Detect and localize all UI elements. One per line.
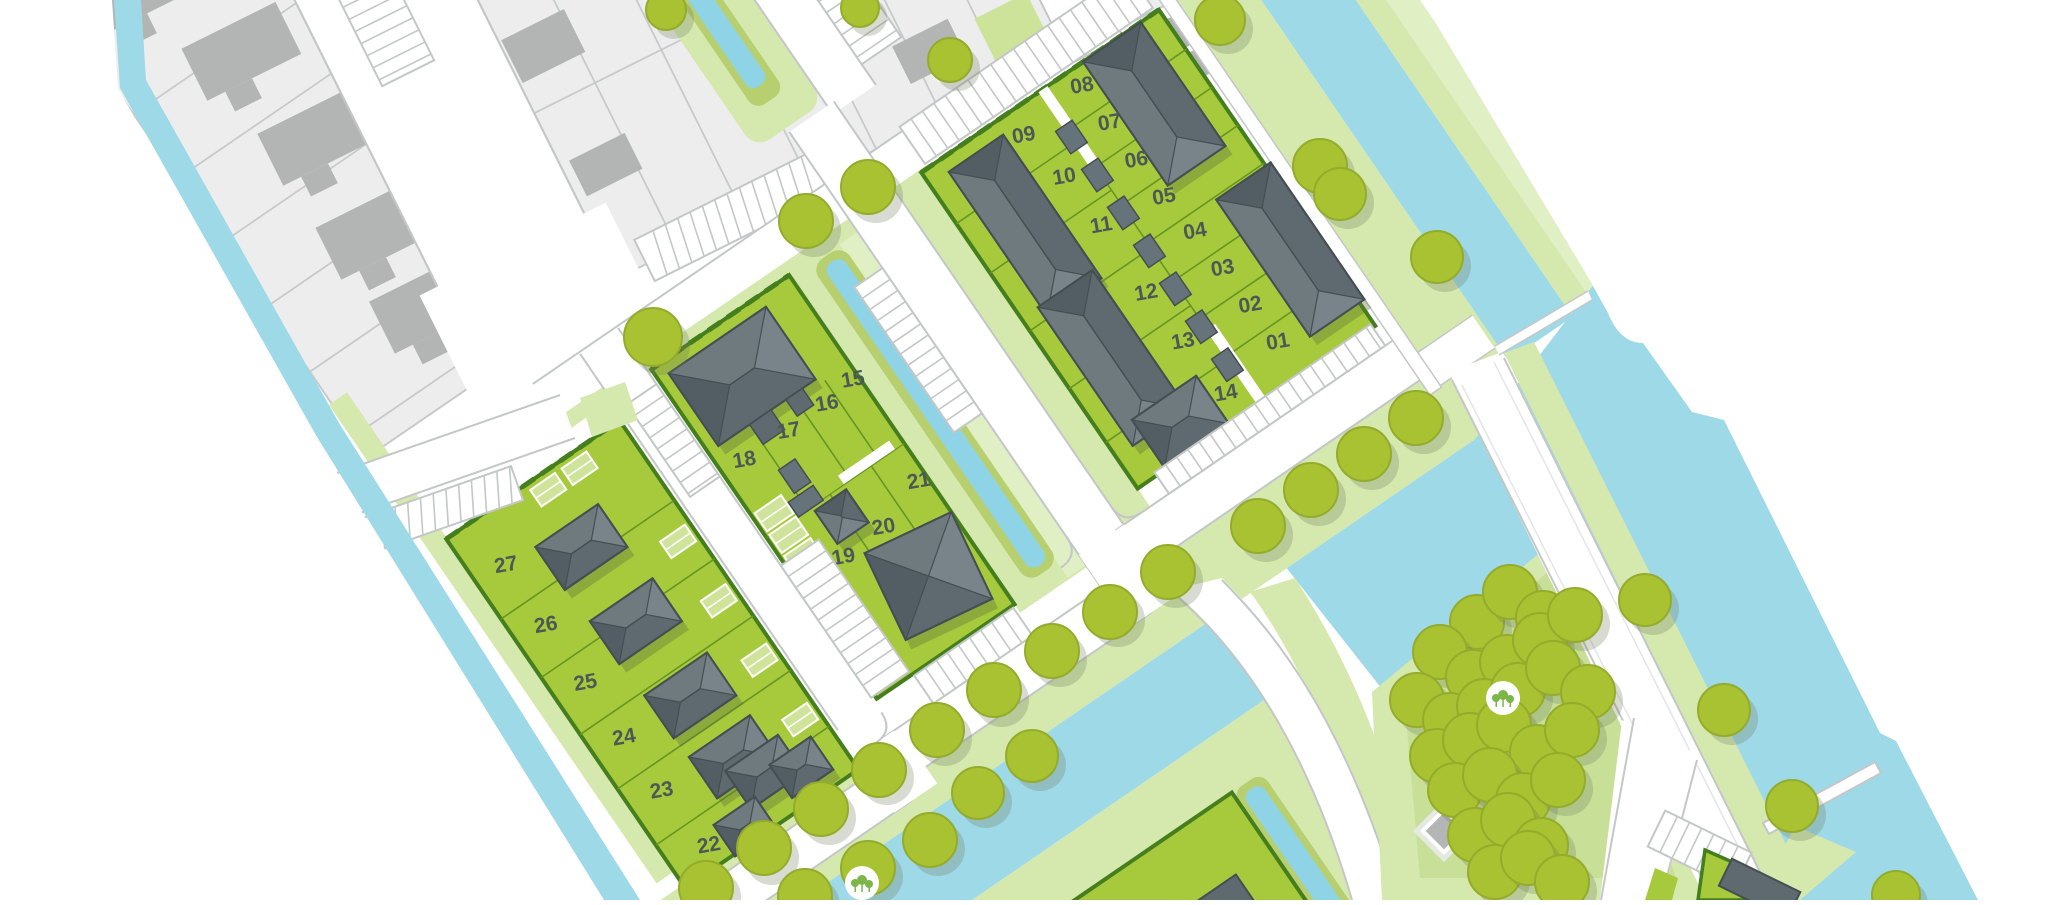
- svg-text:09: 09: [1010, 122, 1037, 149]
- svg-text:23: 23: [648, 777, 675, 804]
- svg-text:07: 07: [1096, 109, 1123, 136]
- svg-text:14: 14: [1212, 380, 1239, 407]
- svg-text:17: 17: [775, 417, 802, 444]
- svg-text:12: 12: [1133, 279, 1160, 306]
- svg-text:01: 01: [1264, 328, 1291, 355]
- svg-text:20: 20: [870, 514, 897, 541]
- svg-text:22: 22: [695, 832, 722, 859]
- svg-text:18: 18: [731, 446, 758, 473]
- svg-text:02: 02: [1237, 292, 1264, 319]
- svg-text:21: 21: [905, 468, 932, 495]
- svg-text:06: 06: [1123, 146, 1150, 173]
- svg-text:11: 11: [1088, 212, 1114, 239]
- svg-text:15: 15: [839, 366, 866, 393]
- svg-text:08: 08: [1068, 72, 1095, 99]
- svg-text:26: 26: [532, 611, 559, 638]
- svg-text:10: 10: [1051, 163, 1078, 190]
- svg-text:24: 24: [611, 724, 638, 751]
- svg-text:05: 05: [1151, 183, 1178, 210]
- svg-text:04: 04: [1181, 218, 1208, 245]
- svg-text:16: 16: [813, 390, 840, 417]
- svg-text:13: 13: [1170, 328, 1197, 355]
- svg-text:03: 03: [1209, 255, 1236, 282]
- svg-text:25: 25: [572, 669, 599, 696]
- svg-text:27: 27: [492, 551, 519, 578]
